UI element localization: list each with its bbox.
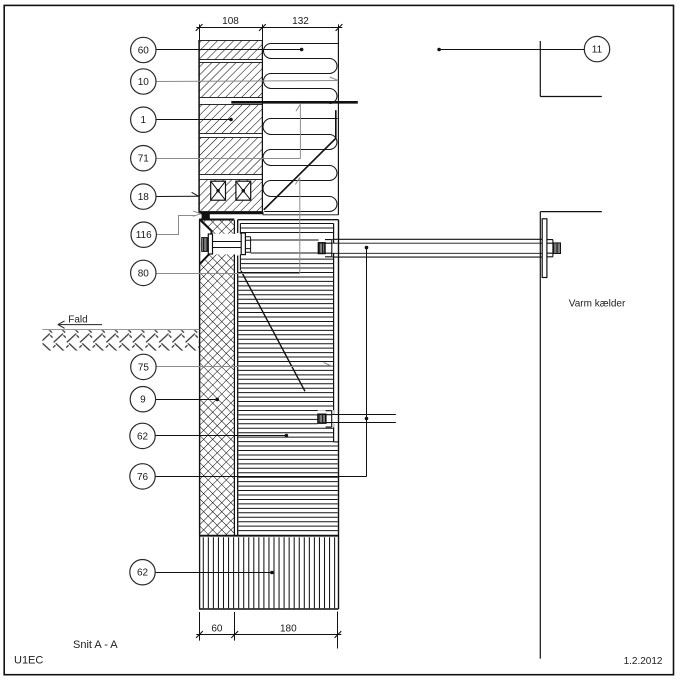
svg-text:76: 76 (137, 472, 149, 483)
svg-text:132: 132 (292, 16, 309, 27)
svg-text:1.2.2012: 1.2.2012 (624, 656, 663, 667)
svg-text:60: 60 (211, 623, 223, 634)
svg-text:Varm kælder: Varm kælder (569, 299, 626, 310)
svg-text:60: 60 (138, 46, 150, 57)
svg-text:10: 10 (138, 77, 150, 88)
svg-text:18: 18 (138, 192, 150, 203)
svg-text:75: 75 (138, 362, 150, 373)
svg-text:U1EC: U1EC (14, 655, 43, 667)
svg-text:Snit A - A: Snit A - A (73, 639, 118, 651)
svg-text:71: 71 (138, 154, 150, 165)
svg-text:Fald: Fald (68, 315, 87, 326)
svg-text:1: 1 (141, 115, 147, 126)
svg-text:62: 62 (137, 568, 149, 579)
svg-text:11: 11 (592, 45, 603, 56)
svg-text:108: 108 (222, 16, 239, 27)
svg-text:62: 62 (137, 431, 149, 442)
svg-text:9: 9 (140, 395, 146, 406)
svg-text:116: 116 (136, 230, 152, 241)
svg-text:80: 80 (138, 268, 150, 279)
svg-text:180: 180 (280, 623, 297, 634)
